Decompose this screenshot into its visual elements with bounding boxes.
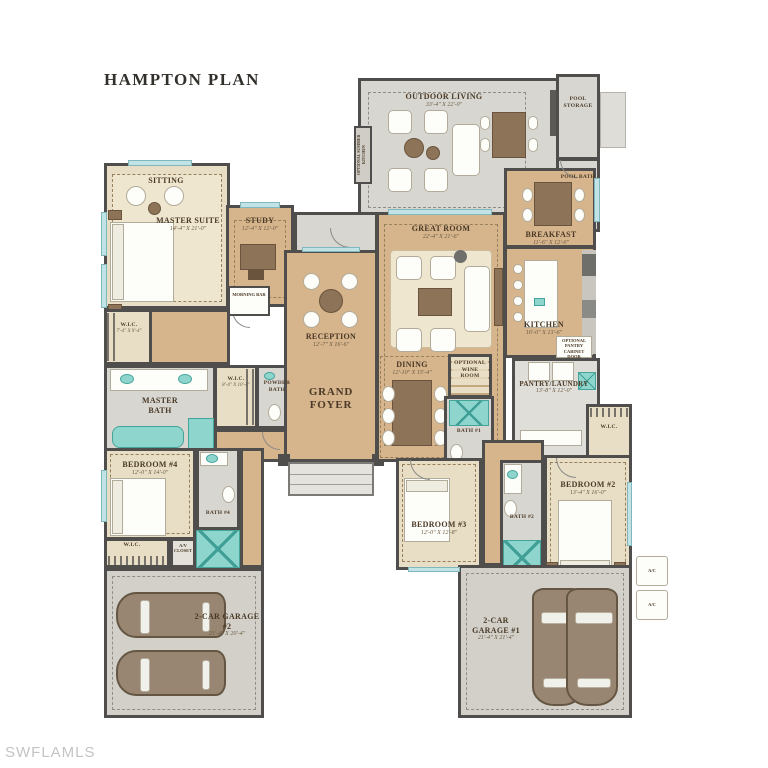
- island-sink: [534, 298, 545, 306]
- sink: [264, 372, 275, 380]
- label-grand-foyer: GRAND FOYER: [301, 386, 361, 412]
- washer: [528, 362, 550, 381]
- outdoor-dining-chair: [480, 138, 490, 152]
- hall-garage2: [240, 448, 264, 568]
- breakfast-table: [534, 182, 572, 226]
- sink: [507, 470, 518, 479]
- label-wic-hall: W.I.C.8'-4" X 10'-4": [216, 376, 256, 389]
- closet-rod: [107, 313, 117, 361]
- dining-chair: [382, 430, 395, 446]
- label-pool-storage: POOL STORAGE: [558, 96, 598, 109]
- armchair: [396, 256, 422, 280]
- bathtub: [112, 426, 184, 448]
- label-pantry-laundry: PANTRY/LAUNDRY13'-8" X 12'-0": [516, 380, 592, 396]
- label-ac-2: A/C: [636, 602, 668, 607]
- breakfast-chair: [574, 208, 585, 222]
- media-console: [494, 268, 503, 326]
- reception-chair: [303, 311, 320, 328]
- breakfast-chair: [522, 188, 533, 202]
- bath1-shower: [449, 400, 489, 426]
- label-bath1: BATH #1: [448, 428, 490, 435]
- outdoor-dining-chair: [480, 116, 490, 130]
- reception-chair: [341, 311, 358, 328]
- sitting-chair: [126, 186, 146, 206]
- window: [101, 264, 107, 308]
- pool-equipment-pad: [600, 92, 626, 148]
- bar-stool: [513, 264, 523, 274]
- outdoor-table: [404, 138, 424, 158]
- sink: [206, 454, 218, 463]
- label-bedroom4: BEDROOM #412'-0" X 14'-0": [114, 460, 186, 477]
- side-table-lamp: [454, 250, 467, 263]
- label-dining: DINING12'-10" X 15'-4": [386, 360, 438, 377]
- sitting-chair: [164, 186, 184, 206]
- label-master-bath: MASTER BATH: [132, 396, 188, 415]
- car: [116, 650, 226, 696]
- dining-chair: [382, 408, 395, 424]
- master-bed-pillows: [112, 224, 124, 300]
- coffee-table: [418, 288, 452, 316]
- watermark: SWFLAMLS: [5, 744, 96, 761]
- label-master-suite: MASTER SUITE14'-4" X 21'-0": [148, 216, 228, 233]
- label-wic-bedroom2: W.I.C.: [592, 424, 626, 431]
- outdoor-dining-table: [492, 112, 526, 158]
- window: [302, 247, 360, 252]
- sink: [178, 374, 192, 384]
- kitchen-island: [524, 260, 558, 328]
- master-shower: [188, 418, 214, 452]
- breakfast-chair: [522, 208, 533, 222]
- dining-chair: [382, 386, 395, 402]
- car-windshield: [140, 658, 150, 692]
- closet-rod: [590, 408, 628, 417]
- label-wic-bedroom4: W.I.C.: [112, 542, 152, 549]
- label-breakfast: BREAKFAST11'-6" X 12'-0": [520, 230, 582, 247]
- step-line: [290, 474, 372, 475]
- refrigerator: [582, 254, 596, 276]
- window: [101, 212, 107, 256]
- plan-title: HAMPTON PLAN: [104, 70, 260, 90]
- label-av-closet: A/V CLOSET: [171, 543, 195, 554]
- sitting-table: [148, 202, 161, 215]
- toilet: [222, 486, 235, 503]
- armchair: [430, 328, 456, 352]
- outdoor-chair: [388, 168, 412, 192]
- car-rear-window: [202, 660, 210, 690]
- label-pantry-note: OPTIONAL PANTRY CABINET DOOR: [557, 338, 591, 360]
- label-garage2: 2-CAR GARAGE #221'-4" X 20'-4": [194, 612, 260, 638]
- car: [566, 588, 618, 706]
- label-outdoor-living: OUTDOOR LIVING33'-4" X 22'-0": [396, 92, 492, 109]
- outdoor-dining-chair: [528, 116, 538, 130]
- step-line: [290, 484, 372, 485]
- room-pool-storage: [556, 74, 600, 160]
- label-morning-bar: MORNING BAR: [230, 292, 268, 297]
- car-windshield: [575, 612, 613, 624]
- outdoor-chair: [424, 110, 448, 134]
- hall-master: [149, 309, 230, 365]
- label-garage1: 2-CAR GARAGE #121'-4" X 21'-4": [464, 616, 528, 642]
- outdoor-chair: [388, 110, 412, 134]
- sofa: [464, 266, 490, 332]
- label-ac-1: A/C: [636, 568, 668, 573]
- label-powder-bath: POWDER BATH: [258, 380, 296, 393]
- outdoor-loveseat: [452, 124, 480, 176]
- label-reception: RECEPTION12'-7" X 16'-6": [300, 332, 362, 349]
- study-desk: [240, 244, 276, 270]
- sink: [120, 374, 134, 384]
- label-study: STUDY12'-4" X 12'-0": [230, 216, 290, 233]
- outdoor-side-table: [426, 146, 440, 160]
- entry-steps: [288, 462, 374, 496]
- label-pool-bath: POOL BATH: [558, 174, 598, 181]
- toilet: [268, 404, 281, 421]
- label-great-room: GREAT ROOM22'-4" X 21'-6": [406, 224, 476, 241]
- armchair: [396, 328, 422, 352]
- label-kitchen: KITCHEN16'-0" X 13'-6": [508, 320, 580, 337]
- window: [101, 470, 107, 522]
- window: [240, 202, 280, 208]
- bedroom4-pillows: [112, 480, 123, 534]
- reception-chair: [303, 273, 320, 290]
- label-summer-kitchen: OPTIONAL SUMMER KITCHEN: [356, 130, 369, 180]
- label-bedroom2: BEDROOM #213'-4" X 16'-0": [548, 480, 628, 497]
- sliding-glass-door: [388, 209, 492, 215]
- bedroom3-pillows: [406, 480, 448, 492]
- bar-stool: [513, 280, 523, 290]
- bath2-vanity: [504, 464, 522, 494]
- window: [128, 160, 192, 166]
- armchair: [430, 256, 456, 280]
- label-wic-master: W.I.C.7'-4" X 9'-4": [108, 322, 150, 335]
- reception-chair: [341, 273, 358, 290]
- outdoor-chair: [424, 168, 448, 192]
- breakfast-chair: [574, 188, 585, 202]
- bath4-shower: [196, 530, 240, 568]
- morning-bar: [228, 286, 270, 316]
- car-windshield: [140, 600, 150, 634]
- label-wine-room: OPTIONAL WINE ROOM: [452, 360, 488, 380]
- label-bath2: BATH #2: [503, 514, 541, 521]
- dining-table: [392, 380, 432, 446]
- label-bath4: BATH #4: [198, 510, 238, 517]
- nightstand: [108, 210, 122, 220]
- dryer: [552, 362, 574, 381]
- study-chair: [248, 270, 264, 280]
- label-sitting: SITTING: [136, 176, 196, 186]
- car-rear-window: [577, 678, 611, 688]
- window: [408, 567, 460, 572]
- outdoor-dining-chair: [528, 138, 538, 152]
- label-bedroom3: BEDROOM #312'-0" X 12'-8": [404, 520, 474, 537]
- reception-table: [319, 289, 343, 313]
- closet-rod: [108, 556, 166, 565]
- room-reception-foyer: [284, 250, 378, 462]
- window: [594, 178, 600, 222]
- bar-stool: [513, 296, 523, 306]
- floor-plan-canvas: HAMPTON PLAN OPTIONAL SUMMER KITCHEN OUT…: [0, 0, 768, 768]
- range: [582, 300, 596, 318]
